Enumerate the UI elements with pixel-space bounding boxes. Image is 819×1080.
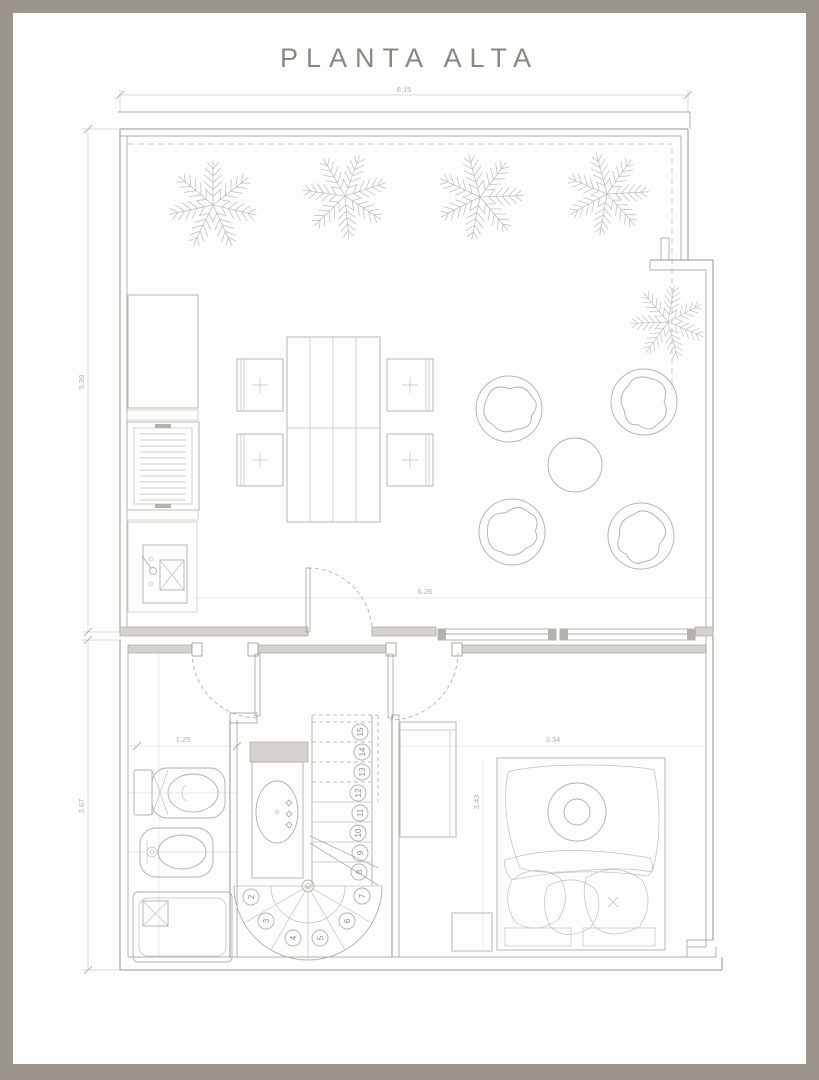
sliding-window [560, 629, 695, 640]
bidet [140, 828, 213, 877]
dim-top-width: 8.15 [397, 85, 412, 94]
plant-icon [623, 278, 712, 366]
stair-step-number: 8 [355, 869, 364, 874]
dim-lower-left-height: 3.67 [77, 799, 86, 814]
kitchen-counter [127, 295, 198, 420]
stair-step-number: 3 [262, 918, 271, 923]
lounge-pouf [472, 372, 547, 447]
lounge-pouf [596, 491, 686, 581]
stair-step-number: 14 [358, 747, 367, 756]
bed-pillows [505, 850, 653, 934]
stair-step-number: 5 [316, 935, 325, 940]
dim-upper-left-height: 5.39 [77, 375, 86, 390]
plant-icon [289, 140, 401, 251]
walls [118, 112, 722, 970]
shower-tray [133, 892, 232, 962]
floor-plan-sheet: PLANTA ALTA [0, 0, 819, 1080]
plant-icon [548, 135, 666, 253]
dining-chair [387, 434, 433, 486]
door-living [306, 568, 372, 632]
door-bedroom [388, 652, 458, 720]
stair-step-number: 9 [356, 850, 365, 855]
stair-step-number: 6 [343, 918, 352, 923]
plant-icon [167, 160, 258, 249]
stair-step-number: 12 [354, 788, 363, 797]
floor-plan-drawing: 8.15 5.39 3.67 6.26 1.25 3.34 [13, 13, 806, 1064]
dim-living-width: 6.26 [418, 587, 433, 596]
dim-bedroom-height: 3.43 [472, 795, 481, 810]
nightstand [452, 913, 492, 951]
vanity-sink [252, 762, 303, 878]
dim-bedroom-width: 3.34 [546, 735, 561, 744]
kitchen-sink [128, 522, 197, 612]
stair-step-number: 15 [356, 727, 365, 736]
plant-icon [425, 143, 534, 251]
bed-cushion [564, 799, 590, 825]
closet [400, 722, 456, 837]
grill [127, 422, 199, 520]
lounge-pouf [608, 366, 680, 438]
door-bathroom [192, 652, 260, 718]
terrace-plants [167, 135, 712, 366]
stair-step-number: 2 [247, 894, 256, 899]
dining-chair [237, 359, 283, 411]
lounge-seating [472, 366, 686, 581]
stair-step-number: 10 [354, 828, 363, 837]
lounge-pouf [473, 493, 551, 571]
stair-step-number: 13 [358, 767, 367, 776]
bed [497, 758, 665, 950]
stair-step-number: 11 [356, 808, 365, 817]
bed-cushion [548, 783, 606, 841]
dim-bathroom-width: 1.25 [176, 735, 191, 744]
lounge-round-table [548, 438, 602, 492]
stair-step-number: 7 [358, 893, 367, 898]
dining-table [287, 337, 380, 522]
dining-chair [387, 359, 433, 411]
dimension-lines: 8.15 5.39 3.67 6.26 1.25 3.34 [77, 85, 712, 974]
dining-chair [237, 434, 283, 486]
stair-step-number: 4 [289, 935, 298, 940]
sliding-window [438, 629, 556, 640]
